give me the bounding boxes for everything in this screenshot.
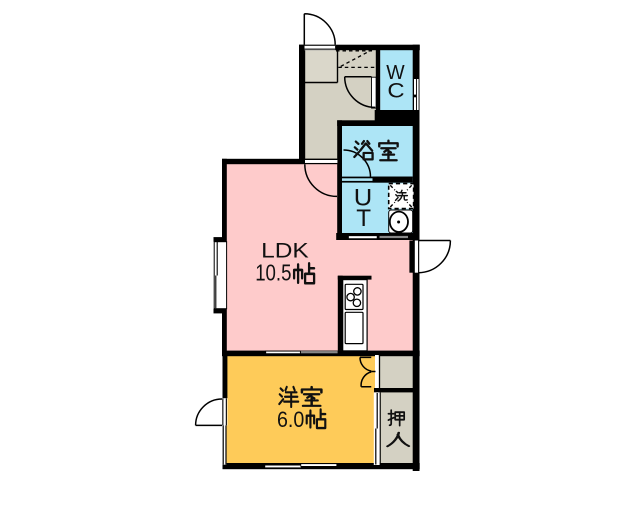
svg-text:10.5: 10.5 <box>255 259 291 285</box>
svg-text:6.0: 6.0 <box>277 407 304 432</box>
svg-text:T: T <box>356 205 371 232</box>
svg-text:C: C <box>387 79 404 103</box>
